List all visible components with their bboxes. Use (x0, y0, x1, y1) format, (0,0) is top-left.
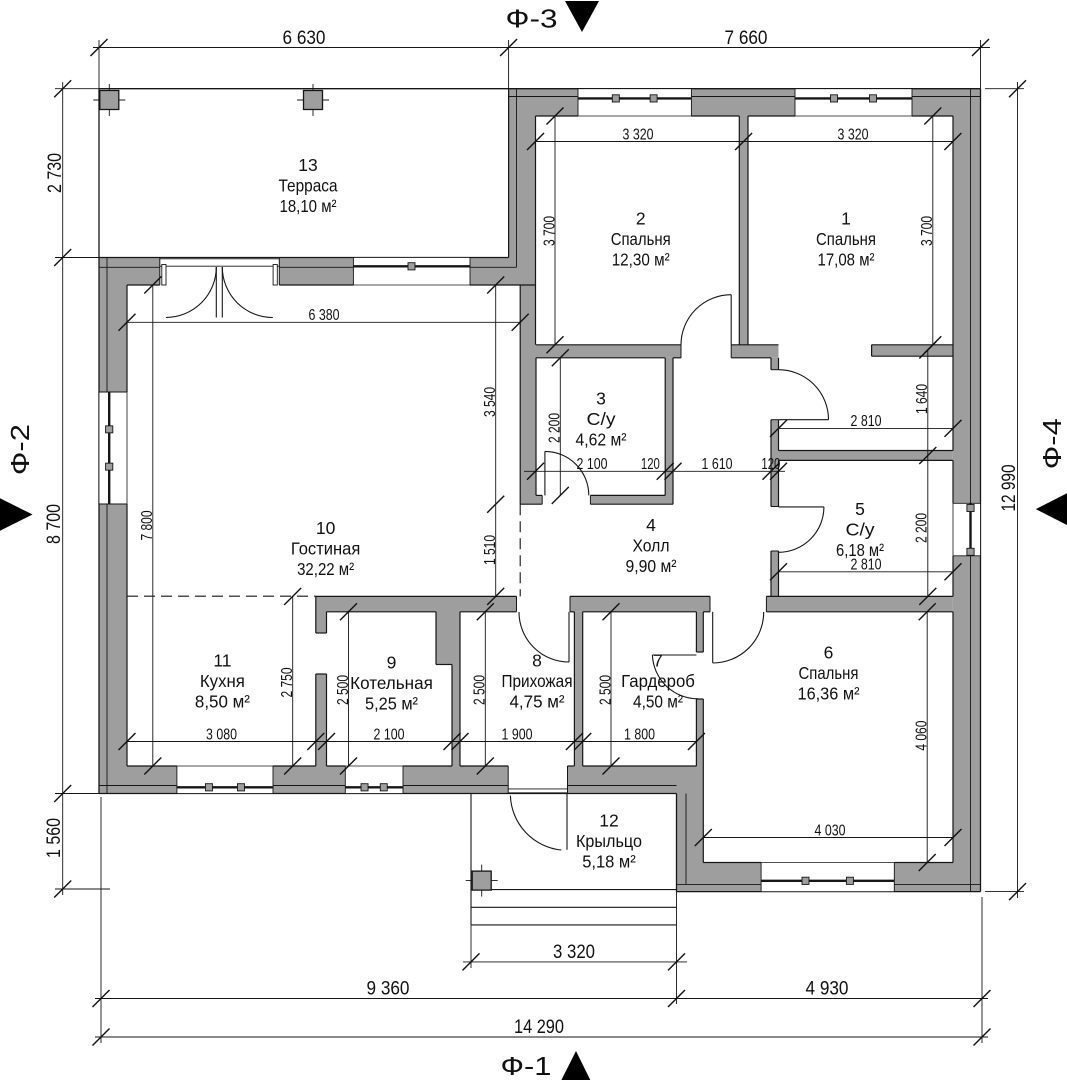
svg-text:3 700: 3 700 (919, 216, 936, 246)
svg-text:12,30 м²: 12,30 м² (612, 249, 670, 269)
svg-text:2 200: 2 200 (547, 413, 564, 443)
svg-text:Спальня: Спальня (799, 663, 859, 683)
svg-text:Ф-1: Ф-1 (501, 1051, 552, 1080)
svg-text:С/у: С/у (846, 519, 875, 539)
svg-text:12 990: 12 990 (998, 464, 1020, 511)
svg-text:14 290: 14 290 (514, 1016, 564, 1038)
svg-text:8,50 м²: 8,50 м² (195, 691, 250, 711)
svg-text:1 610: 1 610 (702, 456, 733, 473)
svg-text:18,10 м²: 18,10 м² (280, 196, 337, 216)
svg-text:4,75 м²: 4,75 м² (510, 691, 565, 711)
svg-text:2 730: 2 730 (44, 153, 66, 193)
svg-text:2 200: 2 200 (914, 513, 931, 543)
svg-text:4 030: 4 030 (815, 822, 846, 839)
svg-text:6,18 м²: 6,18 м² (836, 540, 884, 560)
svg-text:6: 6 (824, 642, 834, 662)
svg-text:Терраса: Терраса (279, 175, 338, 195)
svg-text:3 320: 3 320 (838, 126, 869, 143)
svg-text:3 320: 3 320 (553, 941, 595, 963)
svg-text:1 510: 1 510 (482, 535, 499, 565)
svg-text:1 640: 1 640 (914, 384, 931, 414)
svg-text:2 750: 2 750 (279, 667, 296, 697)
svg-text:16,36 м²: 16,36 м² (798, 683, 860, 703)
svg-text:9 360: 9 360 (367, 978, 410, 1000)
svg-text:11: 11 (213, 650, 231, 670)
svg-text:5,25 м²: 5,25 м² (365, 693, 418, 713)
svg-text:Ф-2: Ф-2 (5, 424, 35, 475)
svg-text:120: 120 (761, 456, 780, 473)
svg-text:3 540: 3 540 (482, 387, 499, 417)
svg-text:Крыльцо: Крыльцо (576, 831, 642, 851)
svg-text:3 700: 3 700 (541, 216, 558, 246)
svg-text:4,50 м²: 4,50 м² (633, 691, 683, 711)
svg-text:3 320: 3 320 (623, 126, 654, 143)
svg-text:4: 4 (646, 515, 656, 535)
svg-text:4,62 м²: 4,62 м² (576, 429, 627, 449)
svg-text:5,18 м²: 5,18 м² (582, 851, 636, 871)
svg-text:2 100: 2 100 (577, 456, 608, 473)
svg-text:2 500: 2 500 (597, 675, 614, 705)
svg-text:9: 9 (387, 652, 397, 672)
svg-text:8: 8 (532, 650, 542, 670)
svg-text:Спальня: Спальня (611, 229, 671, 249)
svg-text:5: 5 (855, 499, 865, 519)
svg-text:Ф-3: Ф-3 (506, 4, 558, 34)
svg-text:6 380: 6 380 (309, 307, 340, 324)
svg-text:1: 1 (841, 208, 851, 228)
svg-text:2: 2 (636, 208, 646, 228)
svg-text:4 060: 4 060 (914, 720, 931, 750)
svg-text:17,08 м²: 17,08 м² (818, 249, 875, 269)
svg-text:С/у: С/у (587, 409, 616, 429)
svg-text:120: 120 (641, 456, 660, 473)
svg-text:7: 7 (653, 650, 663, 670)
svg-text:Гардероб: Гардероб (621, 671, 695, 691)
svg-text:3: 3 (596, 388, 606, 408)
svg-text:7 800: 7 800 (139, 510, 156, 540)
svg-text:1 800: 1 800 (624, 726, 655, 743)
svg-text:7 660: 7 660 (725, 27, 768, 49)
svg-text:Гостиная: Гостиная (291, 538, 361, 558)
svg-text:13: 13 (298, 155, 317, 175)
svg-text:8 700: 8 700 (43, 504, 65, 544)
svg-text:4 930: 4 930 (806, 978, 849, 1000)
svg-text:3 080: 3 080 (206, 726, 237, 743)
svg-text:2 100: 2 100 (374, 726, 405, 743)
svg-text:32,22 м²: 32,22 м² (297, 559, 354, 579)
svg-text:Холл: Холл (633, 535, 670, 555)
svg-text:9,90 м²: 9,90 м² (626, 556, 677, 576)
svg-text:Прихожая: Прихожая (502, 671, 573, 691)
svg-text:Кухня: Кухня (200, 671, 245, 691)
svg-text:Котельная: Котельная (350, 673, 433, 693)
svg-text:10: 10 (316, 518, 336, 538)
svg-text:1 900: 1 900 (502, 726, 533, 743)
svg-text:1 560: 1 560 (43, 818, 65, 858)
svg-text:6 630: 6 630 (283, 27, 326, 49)
svg-text:2 500: 2 500 (472, 675, 489, 705)
svg-text:Спальня: Спальня (816, 229, 876, 249)
svg-text:12: 12 (599, 810, 618, 830)
svg-text:2 810: 2 810 (851, 413, 882, 430)
svg-text:Ф-4: Ф-4 (1037, 418, 1067, 469)
